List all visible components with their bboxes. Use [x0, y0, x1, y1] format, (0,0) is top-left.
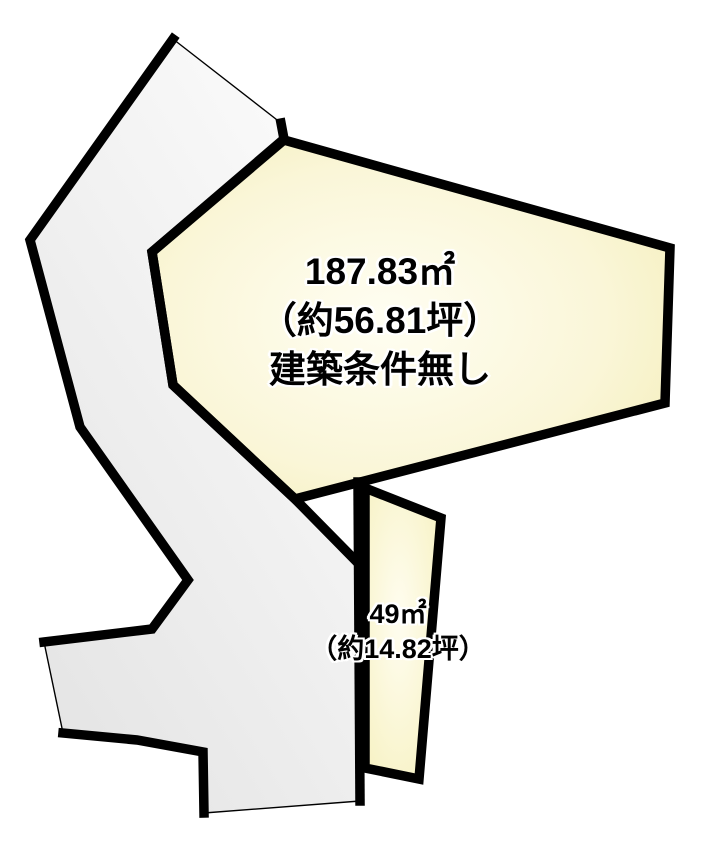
main-parcel-label: 187.83㎡ （約56.81坪） 建築条件無し	[260, 247, 501, 394]
road-bottom-step-boundary	[63, 733, 204, 813]
main-parcel-condition: 建築条件無し	[260, 345, 501, 394]
main-parcel-tsubo: （約56.81坪）	[260, 296, 501, 345]
sub-parcel-tsubo: （約14.82坪）	[310, 632, 486, 667]
main-parcel-area: 187.83㎡	[260, 247, 501, 296]
plot-map-canvas	[0, 0, 706, 853]
sub-parcel-label: 49㎡ （約14.82坪）	[310, 597, 486, 667]
land-plot-diagram: 187.83㎡ （約56.81坪） 建築条件無し 49㎡ （約14.82坪）	[0, 0, 706, 853]
sub-parcel-area: 49㎡	[310, 597, 486, 632]
